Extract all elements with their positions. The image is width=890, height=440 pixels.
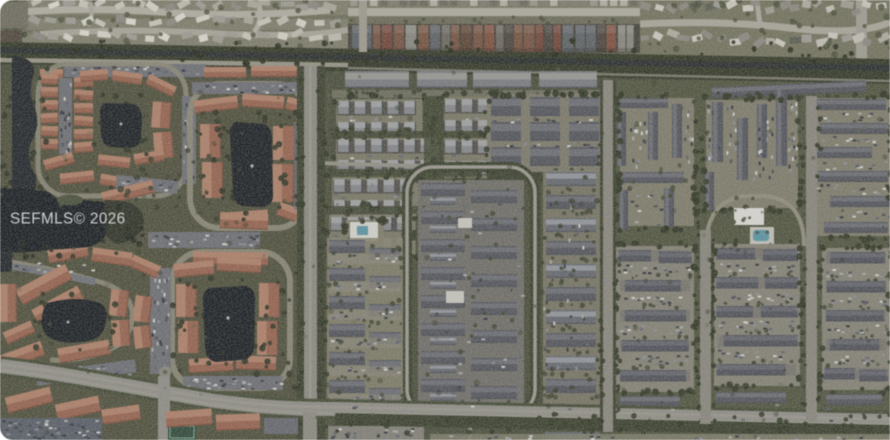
svg-text:SEFMLS© 2026: SEFMLS© 2026 (10, 211, 126, 228)
